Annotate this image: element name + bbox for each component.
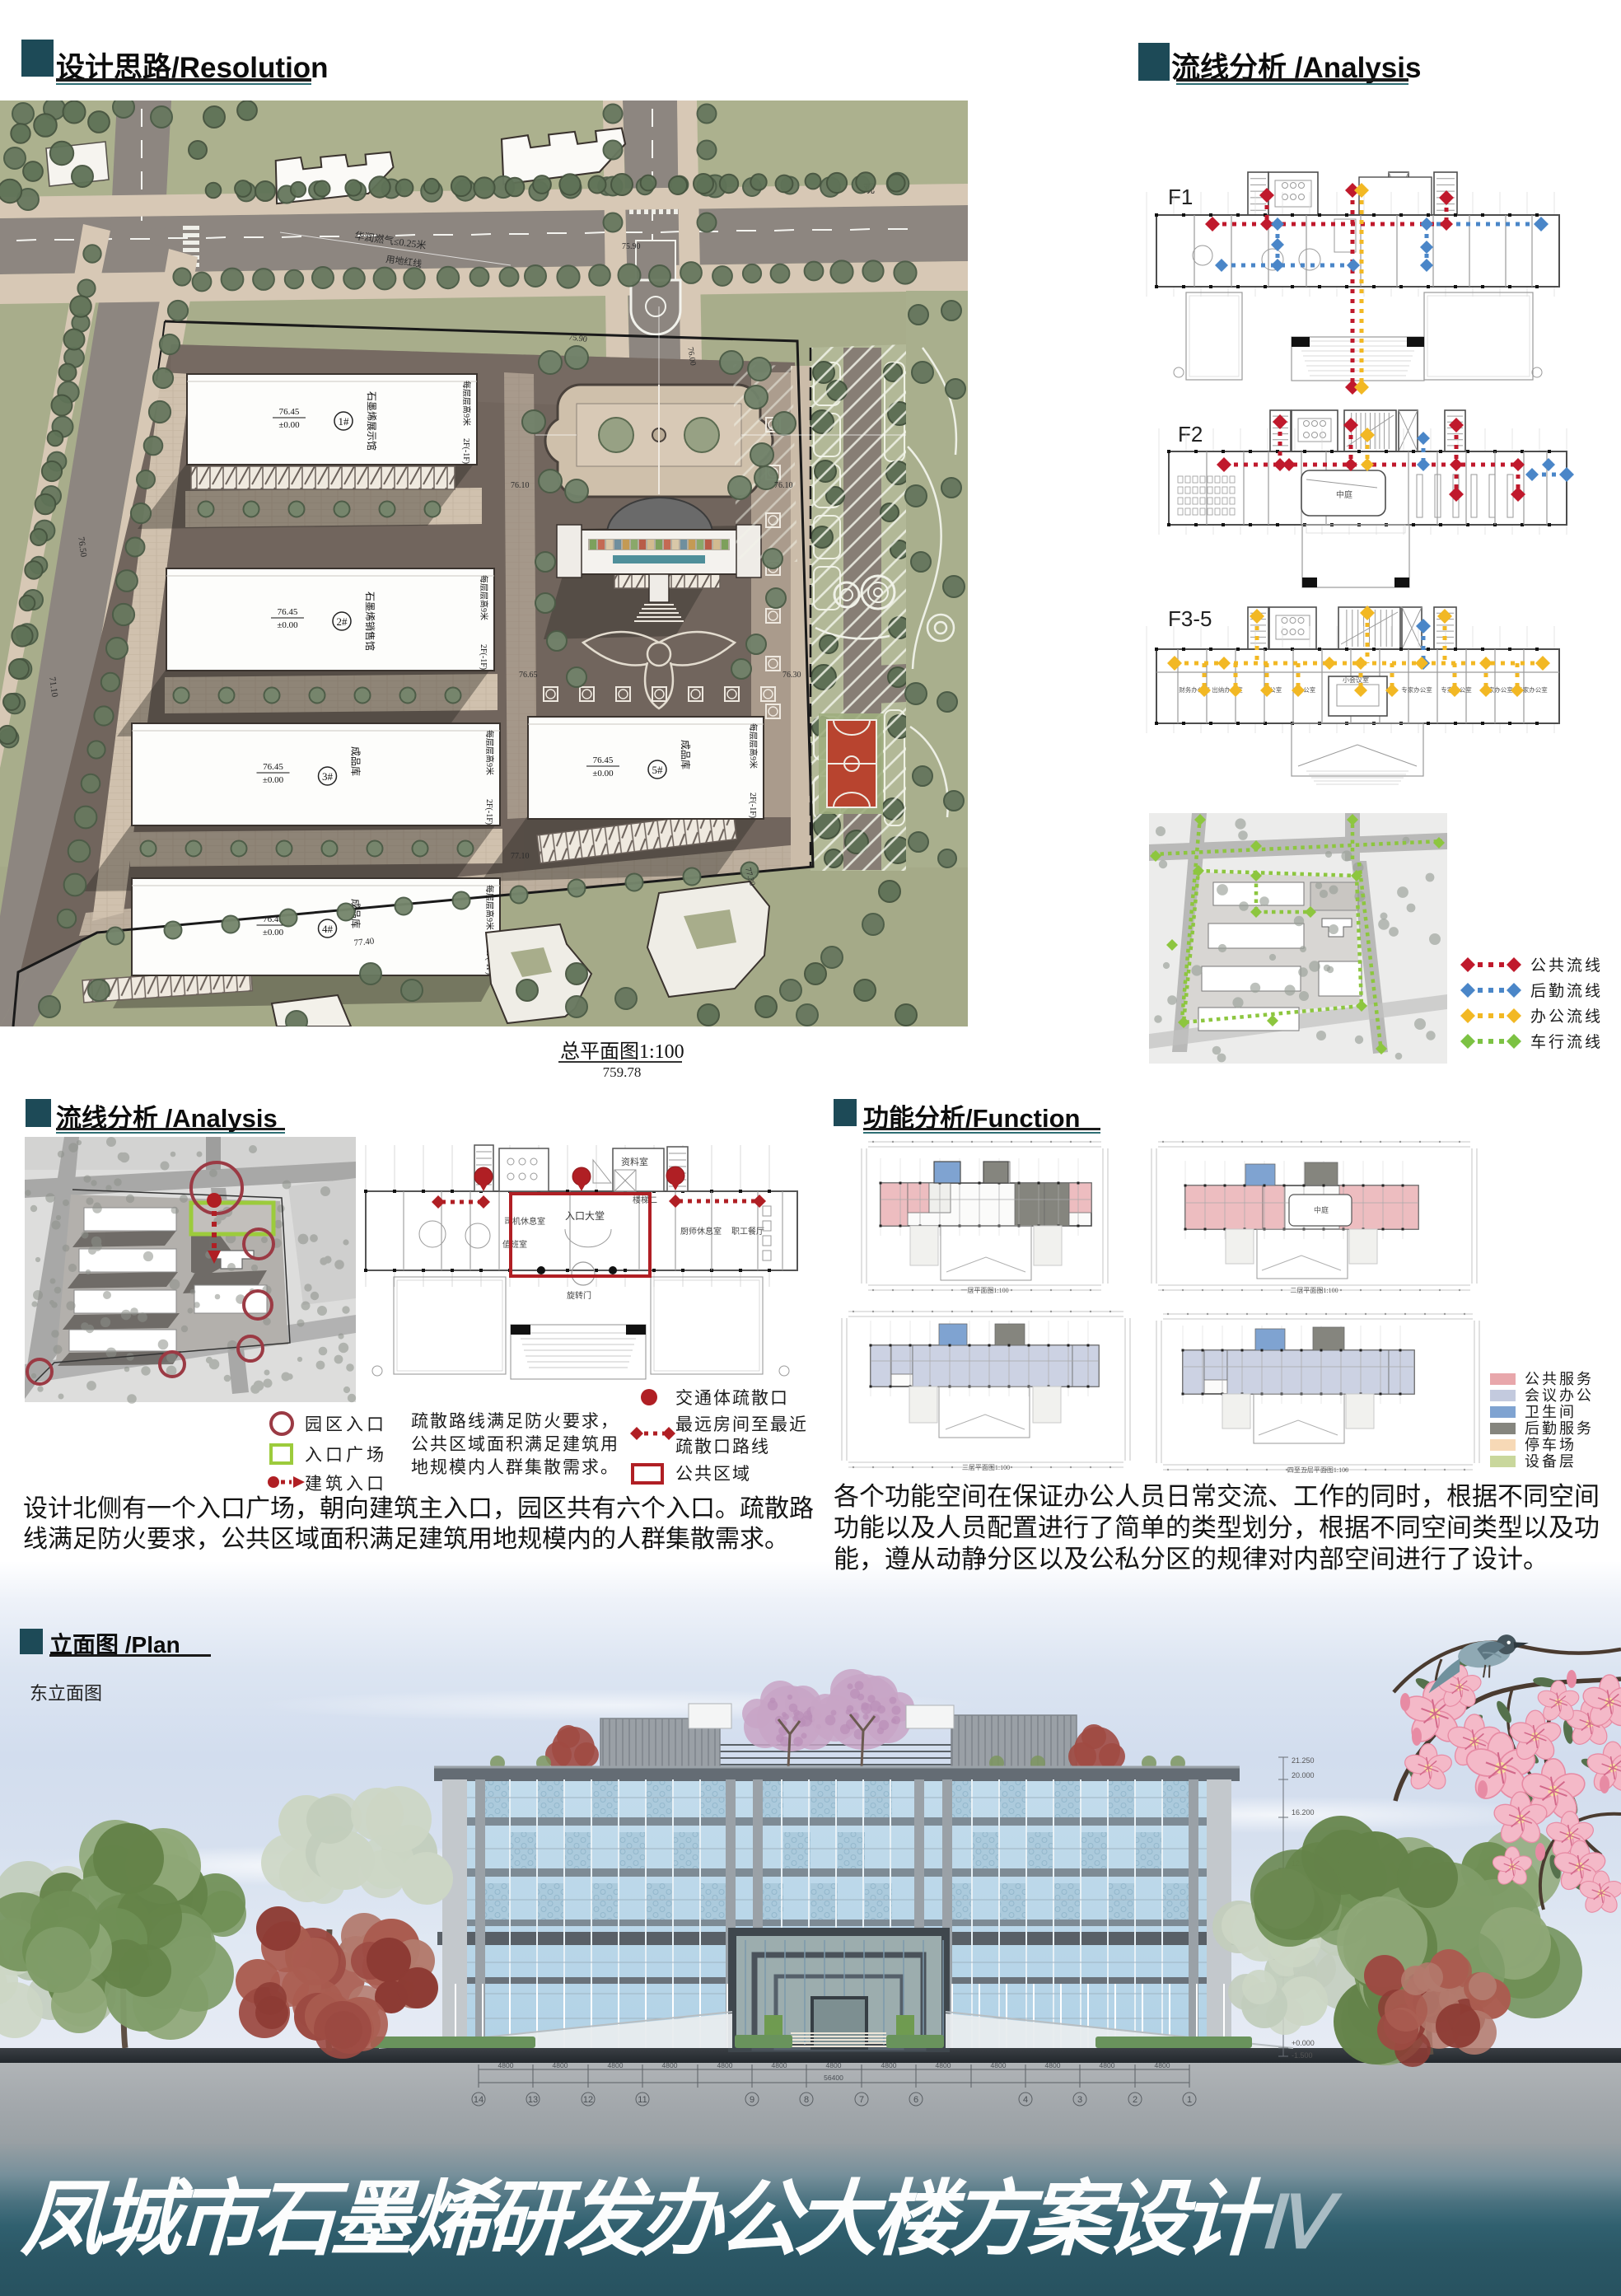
- svg-text:地规模内人群集散需求。: 地规模内人群集散需求。: [411, 1457, 619, 1477]
- svg-text:±0.00: ±0.00: [263, 775, 284, 785]
- svg-text:公共区域: 公共区域: [675, 1464, 751, 1484]
- svg-text:F2: F2: [1178, 422, 1203, 447]
- svg-text:建筑入口: 建筑入口: [305, 1474, 387, 1491]
- svg-text:入口广场: 入口广场: [305, 1445, 387, 1465]
- svg-text:交通体疏散口: 交通体疏散口: [675, 1388, 789, 1408]
- svg-text:2#: 2#: [337, 615, 348, 628]
- svg-text:±0.00: ±0.00: [263, 928, 284, 938]
- svg-text:76.65: 76.65: [519, 671, 538, 680]
- svg-text:楼梯二: 楼梯二: [633, 1195, 657, 1205]
- svg-text:2F(-1F): 2F(-1F): [748, 793, 757, 818]
- svg-text:车行流线: 车行流线: [1530, 1033, 1603, 1051]
- svg-text:二层平面图1:100: 二层平面图1:100: [1290, 1287, 1338, 1294]
- svg-text:每层层高9米: 每层层高9米: [484, 730, 495, 775]
- svg-text:公共服务: 公共服务: [1525, 1371, 1594, 1387]
- svg-text:76.10: 76.10: [511, 481, 530, 490]
- svg-text:一层平面图1:100: 一层平面图1:100: [960, 1287, 1008, 1294]
- svg-text:76.45: 76.45: [278, 607, 298, 617]
- svg-text:2F(-1F): 2F(-1F): [484, 799, 493, 825]
- svg-text:职工餐厅: 职工餐厅: [731, 1226, 764, 1237]
- svg-text:每层层高9米: 每层层高9米: [484, 885, 495, 930]
- svg-text:后勤服务: 后勤服务: [1525, 1420, 1594, 1437]
- svg-text:公共流线: 公共流线: [1530, 956, 1603, 975]
- svg-text:76.10: 76.10: [774, 481, 793, 490]
- svg-text:中庭: 中庭: [1314, 1205, 1329, 1214]
- svg-text:四至五层平面图1:100: 四至五层平面图1:100: [1287, 1466, 1348, 1474]
- svg-text:F3-5: F3-5: [1168, 606, 1212, 631]
- svg-text:疏散路线满足防火要求，: 疏散路线满足防火要求，: [411, 1411, 619, 1431]
- svg-text:停车场: 停车场: [1525, 1437, 1577, 1453]
- svg-text:±0.00: ±0.00: [277, 620, 298, 630]
- svg-text:2F(-1F): 2F(-1F): [461, 438, 470, 464]
- svg-text:小会议室: 小会议室: [1343, 676, 1369, 684]
- svg-text:后勤流线: 后勤流线: [1530, 982, 1603, 1000]
- svg-text:每层层高9米: 每层层高9米: [479, 575, 489, 620]
- svg-text:76.45: 76.45: [279, 407, 300, 417]
- svg-text:园区入口: 园区入口: [305, 1415, 387, 1434]
- svg-text:石墨烯展示馆: 石墨烯展示馆: [366, 391, 378, 451]
- svg-text:疏散口路线: 疏散口路线: [675, 1437, 770, 1457]
- svg-text:76.30: 76.30: [782, 671, 801, 680]
- svg-text:F1: F1: [1168, 185, 1193, 209]
- svg-text:2F(-1F): 2F(-1F): [479, 644, 488, 670]
- svg-text:会议办公: 会议办公: [1525, 1387, 1594, 1404]
- svg-text:中庭: 中庭: [1336, 489, 1352, 500]
- svg-text:3#: 3#: [322, 770, 334, 783]
- svg-text:成品库: 成品库: [680, 740, 692, 769]
- svg-text:厨师休息室: 厨师休息室: [680, 1226, 722, 1237]
- svg-text:石墨烯销售馆: 石墨烯销售馆: [364, 592, 376, 651]
- svg-text:资料室: 资料室: [621, 1156, 648, 1167]
- svg-text:卫生间: 卫生间: [1525, 1404, 1577, 1420]
- svg-text:设备层: 设备层: [1525, 1453, 1577, 1470]
- svg-text:入口大堂: 入口大堂: [565, 1210, 605, 1222]
- svg-text:±0.00: ±0.00: [278, 420, 300, 430]
- svg-text:76.45: 76.45: [593, 755, 614, 765]
- svg-text:75.90: 75.90: [622, 242, 641, 251]
- svg-text:最远房间至最近: 最远房间至最近: [675, 1415, 808, 1434]
- svg-text:4#: 4#: [322, 923, 334, 935]
- svg-text:公共区域面积满足建筑用: 公共区域面积满足建筑用: [411, 1434, 619, 1454]
- svg-text:值班室: 值班室: [502, 1239, 527, 1250]
- svg-text:77.10: 77.10: [511, 852, 530, 861]
- svg-text:1#: 1#: [339, 415, 350, 428]
- svg-text:旋转门: 旋转门: [567, 1290, 591, 1301]
- svg-text:专家办公室: 专家办公室: [1401, 685, 1432, 694]
- svg-text:±0.00: ±0.00: [592, 769, 614, 779]
- svg-text:三层平面图1:100: 三层平面图1:100: [962, 1464, 1010, 1471]
- svg-text:成品库: 成品库: [350, 746, 362, 776]
- svg-text:办公流线: 办公流线: [1530, 1008, 1603, 1026]
- svg-text:76.45: 76.45: [263, 762, 283, 772]
- svg-text:每层层高9米: 每层层高9米: [461, 381, 472, 426]
- svg-text:每层层高9米: 每层层高9米: [748, 723, 759, 769]
- svg-text:5#: 5#: [652, 764, 664, 776]
